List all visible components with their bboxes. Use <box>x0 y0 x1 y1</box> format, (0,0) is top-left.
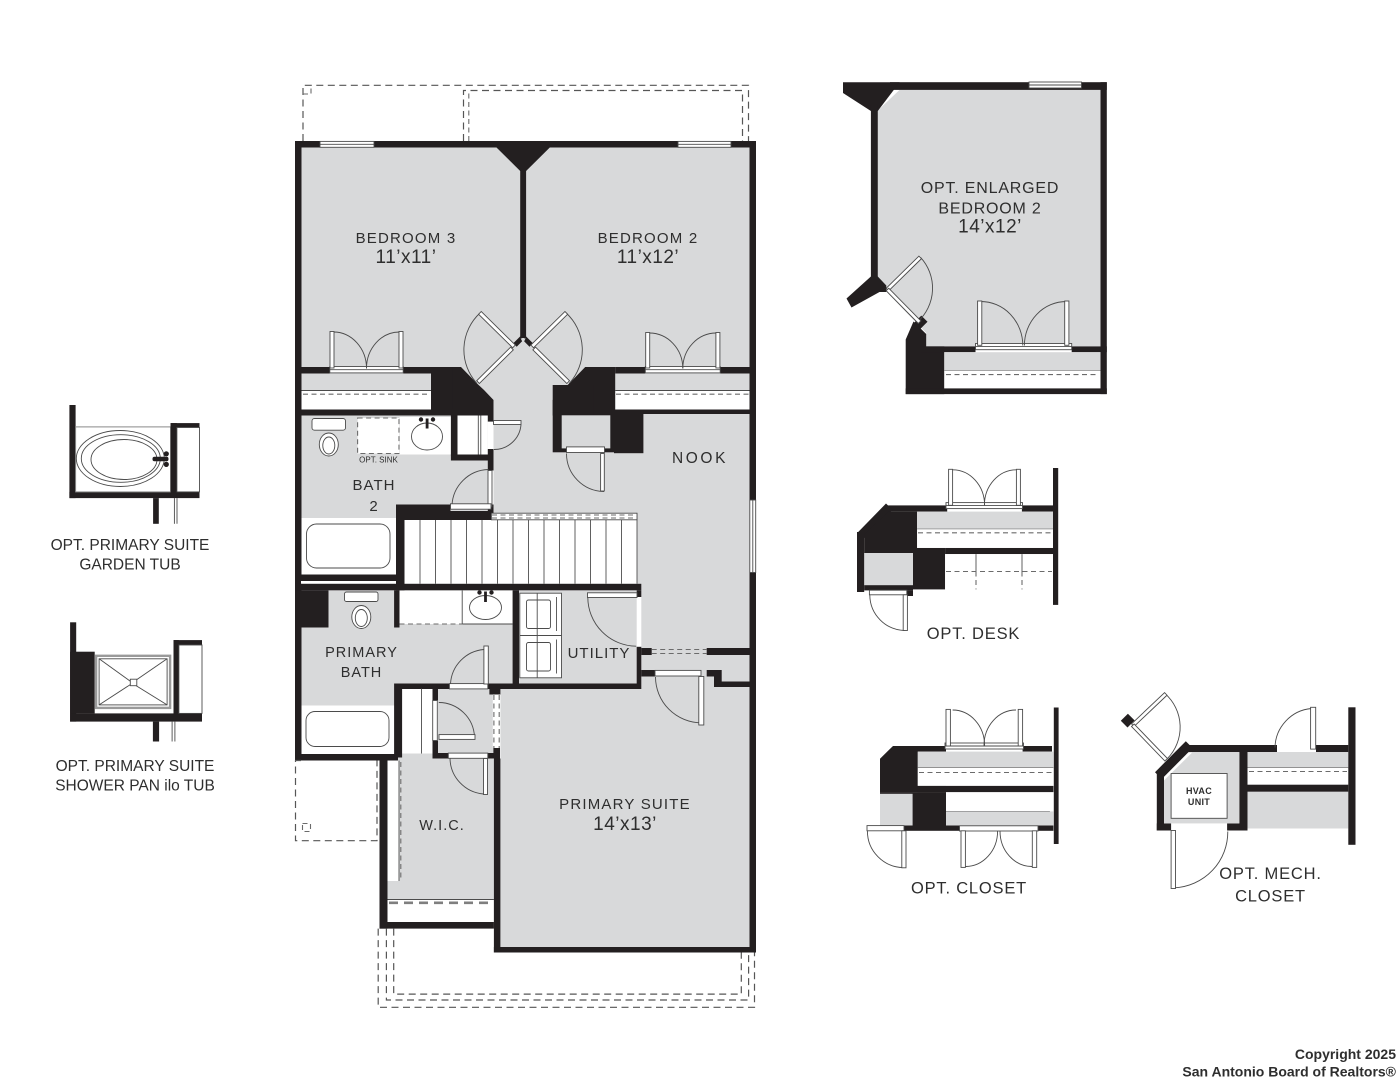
svg-text:OPT. CLOSET: OPT. CLOSET <box>911 880 1027 898</box>
svg-text:BEDROOM 3: BEDROOM 3 <box>356 230 457 247</box>
svg-text:NOOK: NOOK <box>672 450 728 467</box>
svg-text:BEDROOM 2: BEDROOM 2 <box>938 201 1041 218</box>
svg-text:San Antonio Board of Realtors®: San Antonio Board of Realtors® <box>1182 1064 1396 1080</box>
svg-text:W.I.C.: W.I.C. <box>419 818 464 834</box>
svg-text:2: 2 <box>369 498 378 515</box>
svg-text:BATH: BATH <box>353 477 396 494</box>
svg-text:BATH: BATH <box>341 665 383 681</box>
svg-text:OPT. ENLARGED: OPT. ENLARGED <box>921 180 1059 197</box>
svg-text:OPT. DESK: OPT. DESK <box>927 625 1020 643</box>
svg-text:CLOSET: CLOSET <box>1235 888 1306 906</box>
svg-text:OPT. MECH.: OPT. MECH. <box>1219 865 1321 883</box>
svg-text:BEDROOM 2: BEDROOM 2 <box>598 230 699 247</box>
svg-text:Copyright 2025: Copyright 2025 <box>1295 1046 1396 1062</box>
svg-text:PRIMARY SUITE: PRIMARY SUITE <box>559 796 691 813</box>
svg-text:14’x12’: 14’x12’ <box>958 217 1022 238</box>
svg-text:SHOWER PAN ilo TUB: SHOWER PAN ilo TUB <box>55 778 215 795</box>
svg-text:UTILITY: UTILITY <box>568 645 631 662</box>
svg-text:UNIT: UNIT <box>1188 797 1210 807</box>
svg-text:OPT. SINK: OPT. SINK <box>359 456 398 465</box>
svg-text:14’x13’: 14’x13’ <box>593 814 657 835</box>
svg-text:OPT. PRIMARY SUITE: OPT. PRIMARY SUITE <box>51 537 210 554</box>
svg-text:GARDEN TUB: GARDEN TUB <box>79 557 180 574</box>
svg-text:HVAC: HVAC <box>1186 786 1212 796</box>
svg-text:11’x12’: 11’x12’ <box>617 247 679 268</box>
svg-text:OPT. PRIMARY SUITE: OPT. PRIMARY SUITE <box>56 758 215 775</box>
svg-text:PRIMARY: PRIMARY <box>325 645 398 661</box>
svg-text:11’x11’: 11’x11’ <box>376 247 437 268</box>
